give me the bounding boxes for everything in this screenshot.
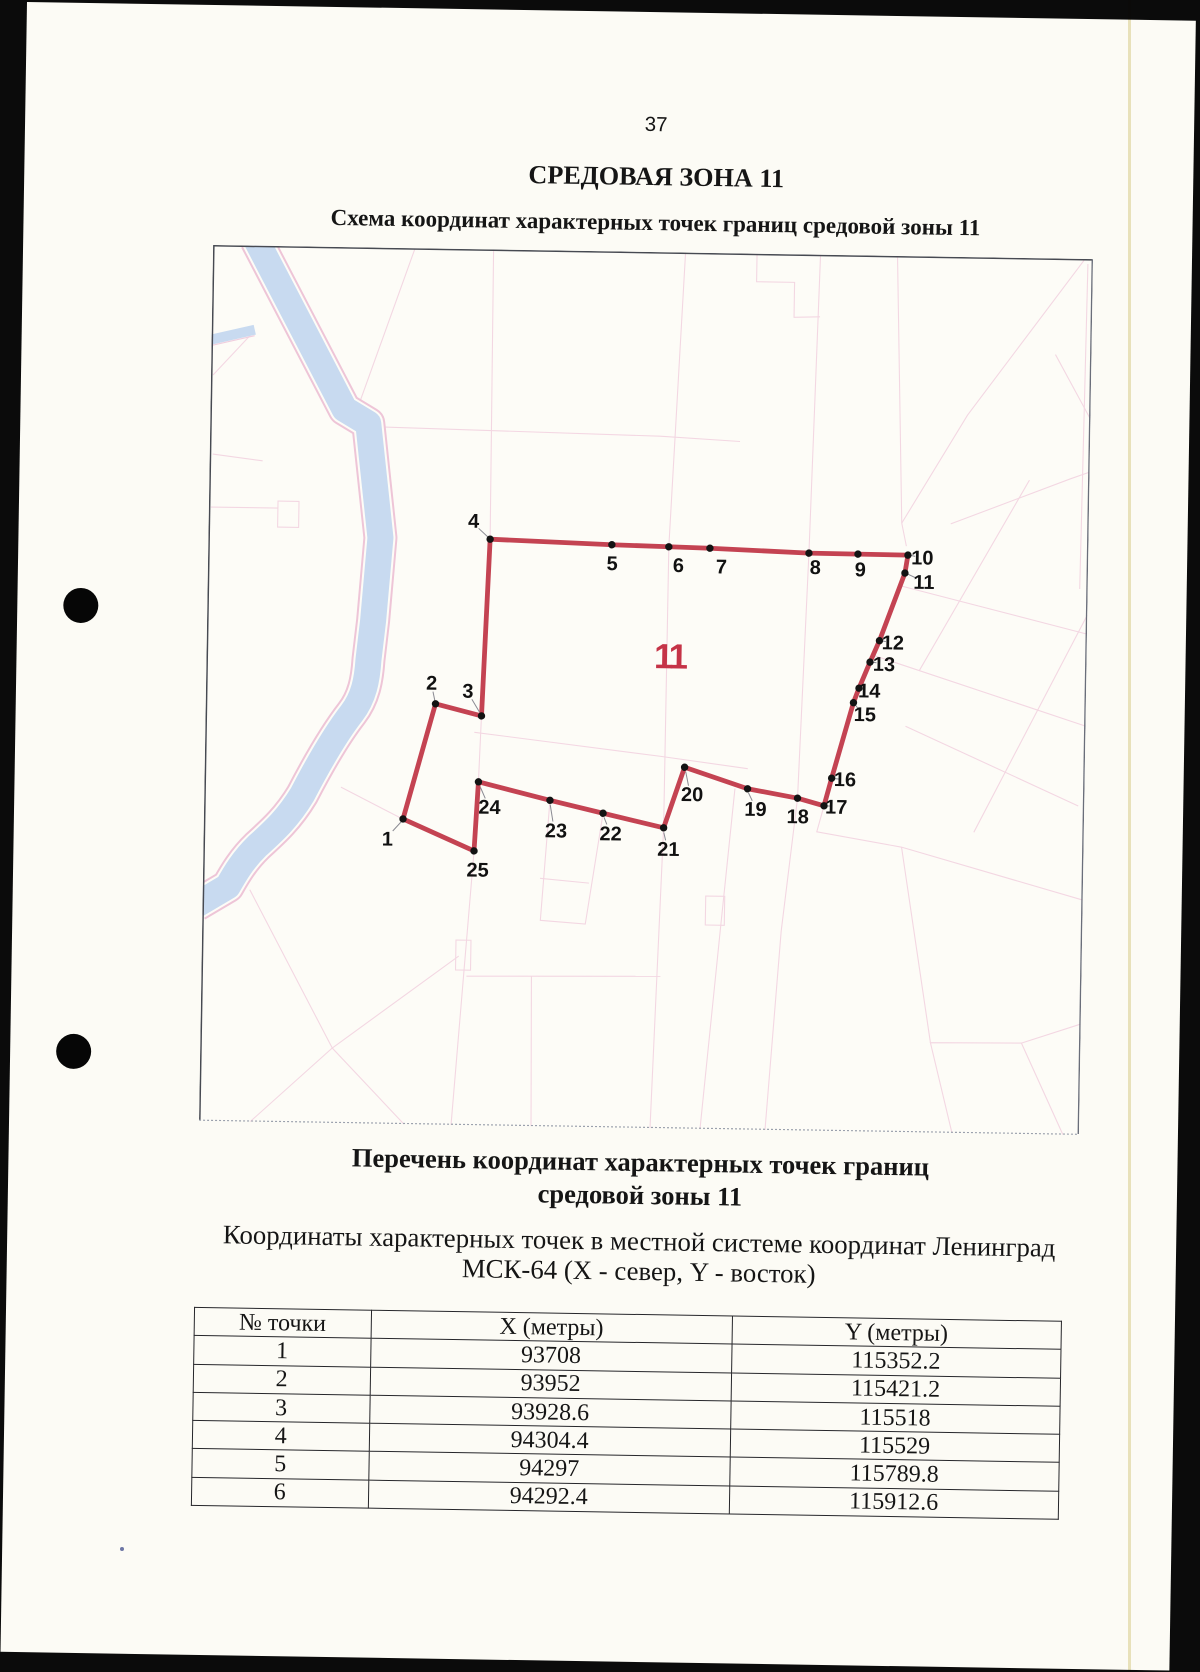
svg-text:9: 9 (855, 559, 866, 581)
svg-text:1: 1 (382, 829, 393, 851)
svg-text:13: 13 (873, 654, 896, 676)
svg-text:11: 11 (913, 572, 935, 594)
svg-text:21: 21 (657, 839, 680, 861)
svg-text:11: 11 (654, 637, 688, 677)
svg-text:23: 23 (545, 820, 568, 842)
svg-text:2: 2 (426, 673, 437, 695)
svg-text:10: 10 (911, 547, 934, 569)
svg-text:16: 16 (834, 769, 857, 791)
svg-text:20: 20 (681, 784, 704, 806)
svg-text:15: 15 (854, 704, 877, 726)
svg-text:3: 3 (462, 681, 473, 703)
svg-text:22: 22 (599, 823, 622, 845)
svg-text:5: 5 (606, 553, 617, 575)
svg-text:7: 7 (716, 556, 727, 578)
svg-text:6: 6 (673, 555, 684, 577)
svg-text:24: 24 (478, 797, 501, 819)
svg-text:18: 18 (786, 806, 809, 828)
svg-text:8: 8 (810, 557, 821, 579)
svg-text:19: 19 (744, 799, 767, 821)
svg-text:14: 14 (858, 680, 881, 702)
svg-text:25: 25 (466, 859, 489, 881)
svg-text:4: 4 (468, 511, 480, 533)
svg-text:17: 17 (825, 797, 848, 819)
svg-text:12: 12 (882, 632, 905, 654)
